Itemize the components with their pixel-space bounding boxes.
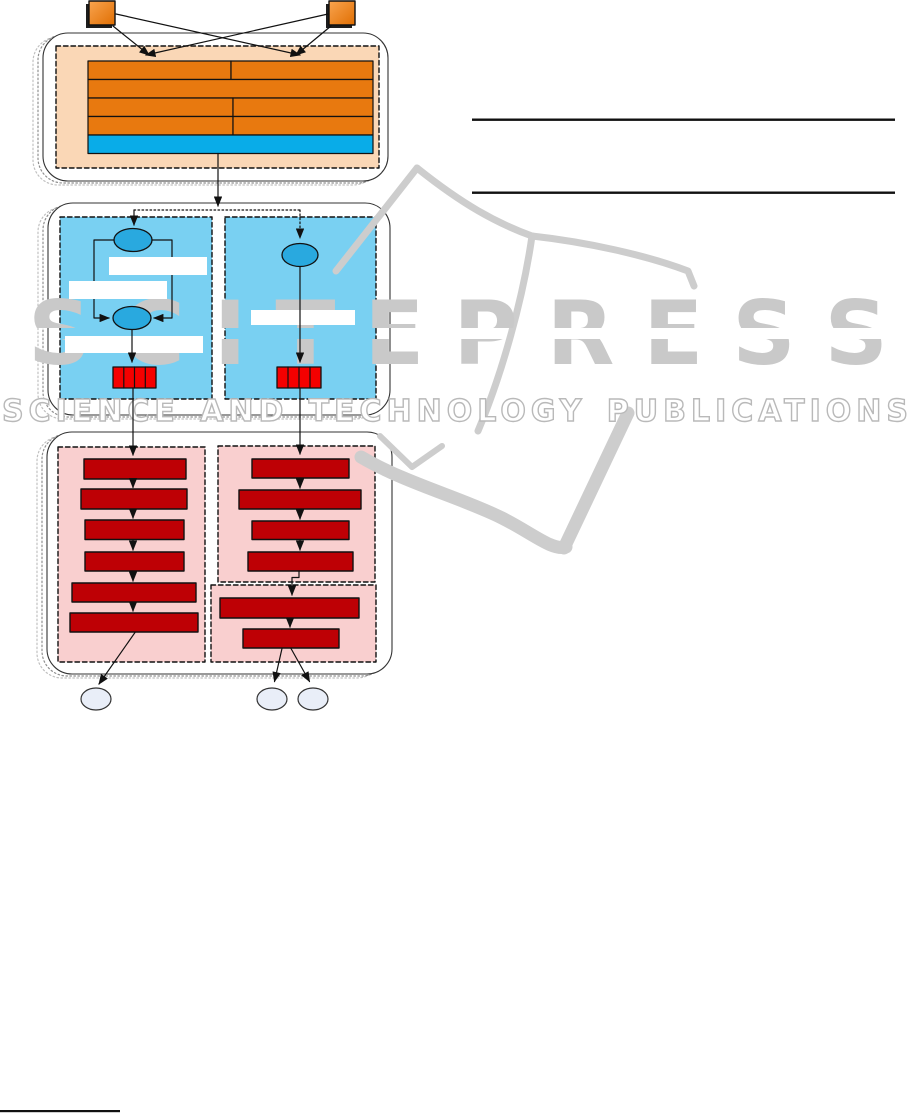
column-rule-bottom — [472, 192, 895, 194]
state-node-merge — [113, 307, 151, 330]
process-right-whitebar — [251, 310, 355, 325]
table-row1-cell2 — [231, 61, 373, 80]
source-right-cross-arrow — [146, 14, 328, 55]
table-row3-cell2 — [233, 98, 373, 117]
result-ellipse-left — [81, 688, 111, 710]
table-row4-cell2 — [233, 117, 373, 136]
result-ellipse-mid — [257, 688, 287, 710]
step-right-3 — [252, 521, 349, 540]
step-left-2 — [81, 489, 187, 509]
loop-right-branch — [152, 240, 172, 318]
step-right-1 — [252, 459, 349, 478]
step-left-4 — [85, 552, 184, 571]
step-bottom-1 — [220, 598, 359, 618]
process-left-whitebar-1 — [109, 257, 207, 275]
step-right-4 — [248, 552, 353, 571]
state-node-right — [282, 244, 318, 267]
step-left-3 — [85, 520, 184, 540]
table-row4-cell1 — [88, 117, 233, 136]
source-left-near-arrow — [113, 26, 149, 55]
step-left-5 — [72, 583, 196, 602]
state-node-top — [114, 229, 152, 252]
step-right-2 — [239, 490, 361, 509]
step-left-1 — [84, 459, 186, 479]
process-left-whitebar-3 — [65, 336, 203, 353]
table-row1-cell1 — [88, 61, 231, 80]
topright-to-bottomright-connector — [292, 571, 299, 595]
result-ellipse-right — [298, 688, 328, 710]
output-mid-arrow — [275, 649, 283, 682]
output-left-arrow — [99, 633, 135, 685]
source-left-cross-arrow — [116, 14, 300, 55]
column-rule-top — [472, 119, 895, 121]
footnote-rule — [0, 1110, 120, 1112]
paper-page: SCITEPRESS SCITEPRESS SCIENCEANDTECHNOLO… — [0, 0, 915, 1114]
process-left-whitebar-2 — [69, 281, 167, 299]
source-left-box — [89, 1, 115, 25]
table-footer-bar — [88, 135, 373, 154]
source-right-near-arrow — [296, 26, 331, 55]
step-bottom-2 — [243, 629, 339, 648]
table-row3-cell1 — [88, 98, 233, 117]
output-right-arrow — [291, 649, 310, 682]
source-right-box — [329, 1, 355, 25]
flowchart-foreground-layer — [0, 0, 915, 1114]
loop-left-branch — [94, 240, 114, 318]
step-left-6 — [70, 613, 198, 632]
table-row2-cell — [88, 80, 373, 99]
